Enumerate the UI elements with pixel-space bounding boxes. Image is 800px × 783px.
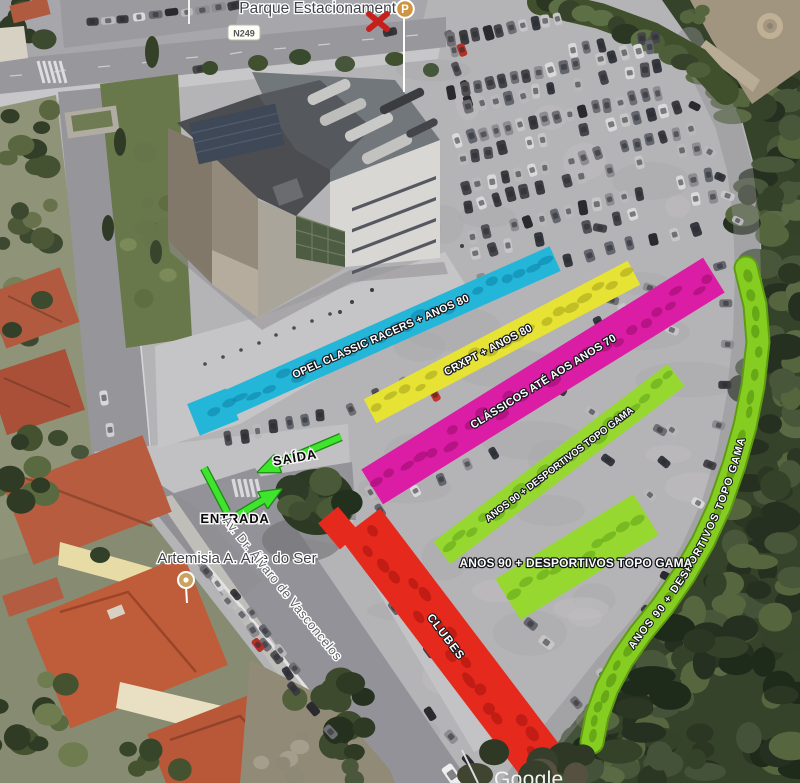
svg-text:ANOS 90 + DESPORTIVOS TOPO GAM: ANOS 90 + DESPORTIVOS TOPO GAMA [460, 556, 693, 570]
svg-text:N249: N249 [233, 29, 255, 39]
svg-text:Parque Estacionamento: Parque Estacionamento [239, 0, 404, 17]
svg-text:Artemisia A. Arte do Ser: Artemisia A. Arte do Ser [157, 550, 316, 567]
svg-text:P: P [401, 4, 409, 16]
svg-text:Google: Google [494, 768, 564, 783]
